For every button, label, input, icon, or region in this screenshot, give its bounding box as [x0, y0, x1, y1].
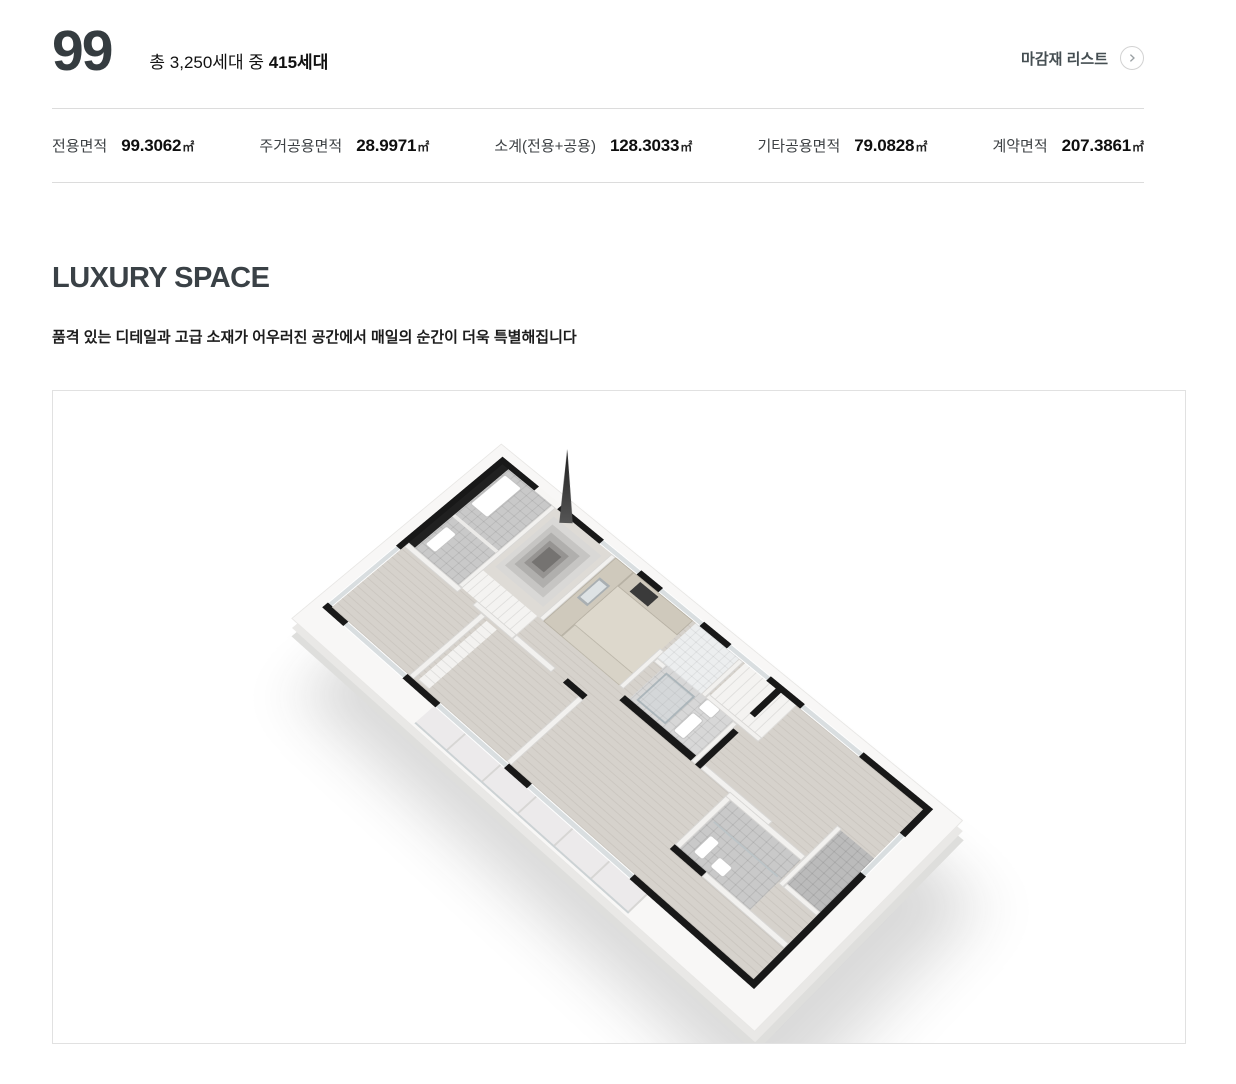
- area-label: 전용면적: [52, 135, 107, 156]
- area-label: 계약면적: [992, 135, 1047, 156]
- area-unit: ㎡: [915, 138, 927, 155]
- unit-type-title: 99: [52, 24, 111, 78]
- unit-header: 99 총 3,250세대 중 415세대 마감재 리스트: [52, 24, 1144, 78]
- floorplan-slab: [293, 445, 962, 1031]
- divider-bottom: [52, 182, 1144, 183]
- area-value: 79.0828: [854, 136, 914, 156]
- area-item-contract: 계약면적 207.3861 ㎡: [992, 135, 1144, 156]
- finish-material-list-link[interactable]: 마감재 리스트: [1021, 46, 1144, 70]
- area-unit: ㎡: [182, 138, 194, 155]
- area-value: 128.3033: [610, 136, 679, 156]
- area-label: 기타공용면적: [757, 135, 840, 156]
- area-spec-row: 전용면적 99.3062 ㎡ 주거공용면적 28.9971 ㎡ 소계(전용+공용…: [52, 109, 1144, 182]
- area-item-subtotal: 소계(전용+공용) 128.3033 ㎡: [494, 135, 692, 156]
- floorplan-panel: [52, 390, 1186, 1044]
- unit-total-count: 415세대: [269, 53, 329, 72]
- area-label: 주거공용면적: [259, 135, 342, 156]
- area-value: 99.3062: [121, 136, 181, 156]
- area-item-other-common: 기타공용면적 79.0828 ㎡: [757, 135, 927, 156]
- area-unit: ㎡: [680, 138, 692, 155]
- area-value: 28.9971: [356, 136, 416, 156]
- area-unit: ㎡: [417, 138, 429, 155]
- area-item-residential-common: 주거공용면적 28.9971 ㎡: [259, 135, 429, 156]
- chevron-right-button[interactable]: [1120, 46, 1144, 70]
- unit-detail-page: 99 총 3,250세대 중 415세대 마감재 리스트 전용면적 99.306…: [0, 0, 1236, 1044]
- chevron-right-icon: [1127, 53, 1137, 63]
- area-label: 소계(전용+공용): [494, 135, 596, 156]
- unit-total-prefix: 총 3,250세대 중: [149, 53, 268, 72]
- section-description: 품격 있는 디테일과 고급 소재가 어우러진 공간에서 매일의 순간이 더욱 특…: [52, 326, 1236, 347]
- unit-total-households: 총 3,250세대 중 415세대: [149, 48, 328, 73]
- area-item-exclusive: 전용면적 99.3062 ㎡: [52, 135, 194, 156]
- finish-material-list-label: 마감재 리스트: [1021, 48, 1108, 69]
- area-unit: ㎡: [1132, 138, 1144, 155]
- floorplan-3d: [293, 445, 962, 1031]
- section-title: LUXURY SPACE: [52, 262, 1236, 295]
- area-value: 207.3861: [1062, 136, 1131, 156]
